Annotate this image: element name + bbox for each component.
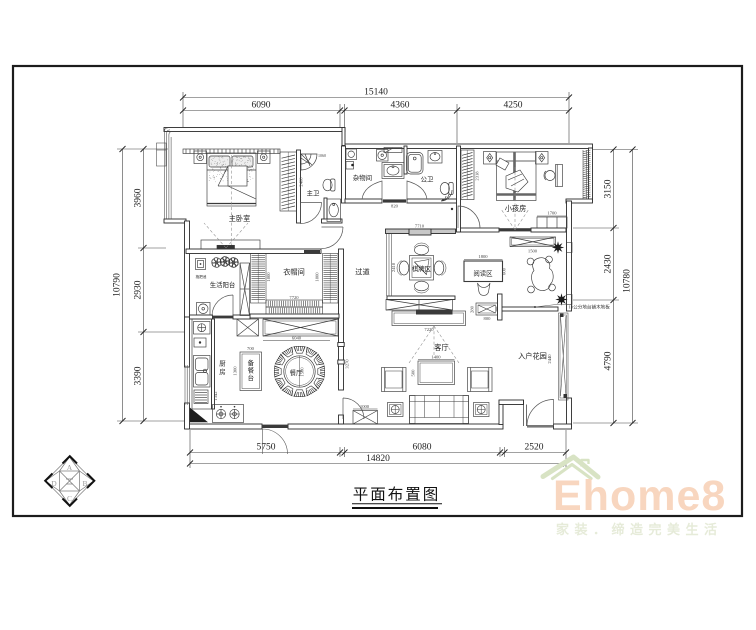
- svg-text:杂物间: 杂物间: [353, 173, 372, 182]
- svg-text:厨: 厨: [219, 360, 226, 368]
- svg-text:棋牌区: 棋牌区: [412, 264, 432, 273]
- svg-text:平面布置图: 平面布置图: [353, 486, 441, 504]
- svg-text:1800: 1800: [478, 254, 488, 259]
- svg-text:衣帽间: 衣帽间: [283, 268, 305, 277]
- svg-text:800: 800: [484, 316, 492, 321]
- svg-text:2400: 2400: [299, 177, 304, 187]
- svg-text:1060: 1060: [318, 153, 326, 158]
- svg-text:700: 700: [247, 346, 255, 351]
- svg-text:14820: 14820: [366, 454, 390, 464]
- svg-text:入户花园: 入户花园: [518, 352, 547, 361]
- svg-text:1800: 1800: [266, 272, 271, 282]
- svg-text:10公分地台铺木地板: 10公分地台铺木地板: [569, 304, 611, 311]
- svg-text:5750: 5750: [257, 443, 276, 453]
- svg-text:生活阳台: 生活阳台: [210, 280, 236, 289]
- svg-text:15140: 15140: [364, 88, 388, 98]
- svg-text:备: 备: [248, 358, 255, 367]
- svg-text:2430: 2430: [604, 254, 614, 273]
- svg-text:7720: 7720: [289, 295, 299, 300]
- svg-text:3960: 3960: [134, 188, 144, 207]
- svg-text:餐: 餐: [248, 366, 255, 375]
- svg-text:2930: 2930: [134, 280, 144, 299]
- svg-text:6080: 6080: [413, 443, 432, 453]
- svg-text:10790: 10790: [113, 273, 123, 297]
- svg-text:小孩房: 小孩房: [505, 204, 527, 213]
- svg-text:1300: 1300: [233, 366, 238, 376]
- svg-text:D: D: [51, 479, 57, 488]
- svg-text:2520: 2520: [525, 443, 544, 453]
- svg-text:3270: 3270: [345, 359, 350, 369]
- svg-text:2440: 2440: [547, 354, 552, 364]
- svg-text:C: C: [67, 494, 72, 503]
- svg-text:公卫: 公卫: [421, 176, 434, 184]
- svg-text:Ehome8: Ehome8: [553, 472, 726, 520]
- svg-text:1342: 1342: [213, 391, 218, 401]
- svg-text:3390: 3390: [134, 366, 144, 385]
- svg-text:1500: 1500: [300, 367, 305, 377]
- svg-text:6090: 6090: [252, 101, 271, 111]
- svg-text:房: 房: [219, 367, 225, 376]
- svg-text:2318: 2318: [475, 171, 480, 181]
- svg-text:A: A: [67, 463, 73, 472]
- svg-text:600: 600: [502, 267, 507, 275]
- svg-text:台: 台: [248, 373, 254, 382]
- svg-text:7710: 7710: [415, 224, 425, 229]
- svg-text:1000: 1000: [360, 404, 370, 409]
- svg-text:2418: 2418: [391, 262, 396, 272]
- svg-text:4250: 4250: [504, 101, 523, 111]
- svg-text:1400: 1400: [431, 355, 441, 360]
- svg-text:家装．缔造完美生活: 家装．缔造完美生活: [556, 522, 723, 537]
- svg-text:阅读区: 阅读区: [473, 269, 493, 278]
- svg-text:主卫: 主卫: [307, 189, 320, 198]
- svg-text:4360: 4360: [391, 101, 410, 111]
- svg-text:客厅: 客厅: [434, 343, 448, 352]
- svg-text:主卧室: 主卧室: [229, 214, 251, 223]
- svg-text:1800: 1800: [315, 272, 320, 282]
- svg-text:6040: 6040: [292, 336, 302, 341]
- svg-text:1500: 1500: [528, 249, 538, 254]
- svg-text:1700: 1700: [547, 211, 557, 216]
- svg-text:3150: 3150: [604, 179, 614, 198]
- svg-text:10780: 10780: [623, 269, 633, 293]
- svg-text:7220: 7220: [424, 327, 434, 332]
- svg-text:500: 500: [411, 369, 416, 377]
- svg-text:B: B: [82, 479, 87, 488]
- svg-text:280: 280: [470, 305, 475, 313]
- svg-text:820: 820: [391, 204, 399, 209]
- svg-text:4790: 4790: [604, 351, 614, 370]
- svg-text:拖把池: 拖把池: [196, 274, 207, 279]
- svg-text:过道: 过道: [355, 268, 369, 277]
